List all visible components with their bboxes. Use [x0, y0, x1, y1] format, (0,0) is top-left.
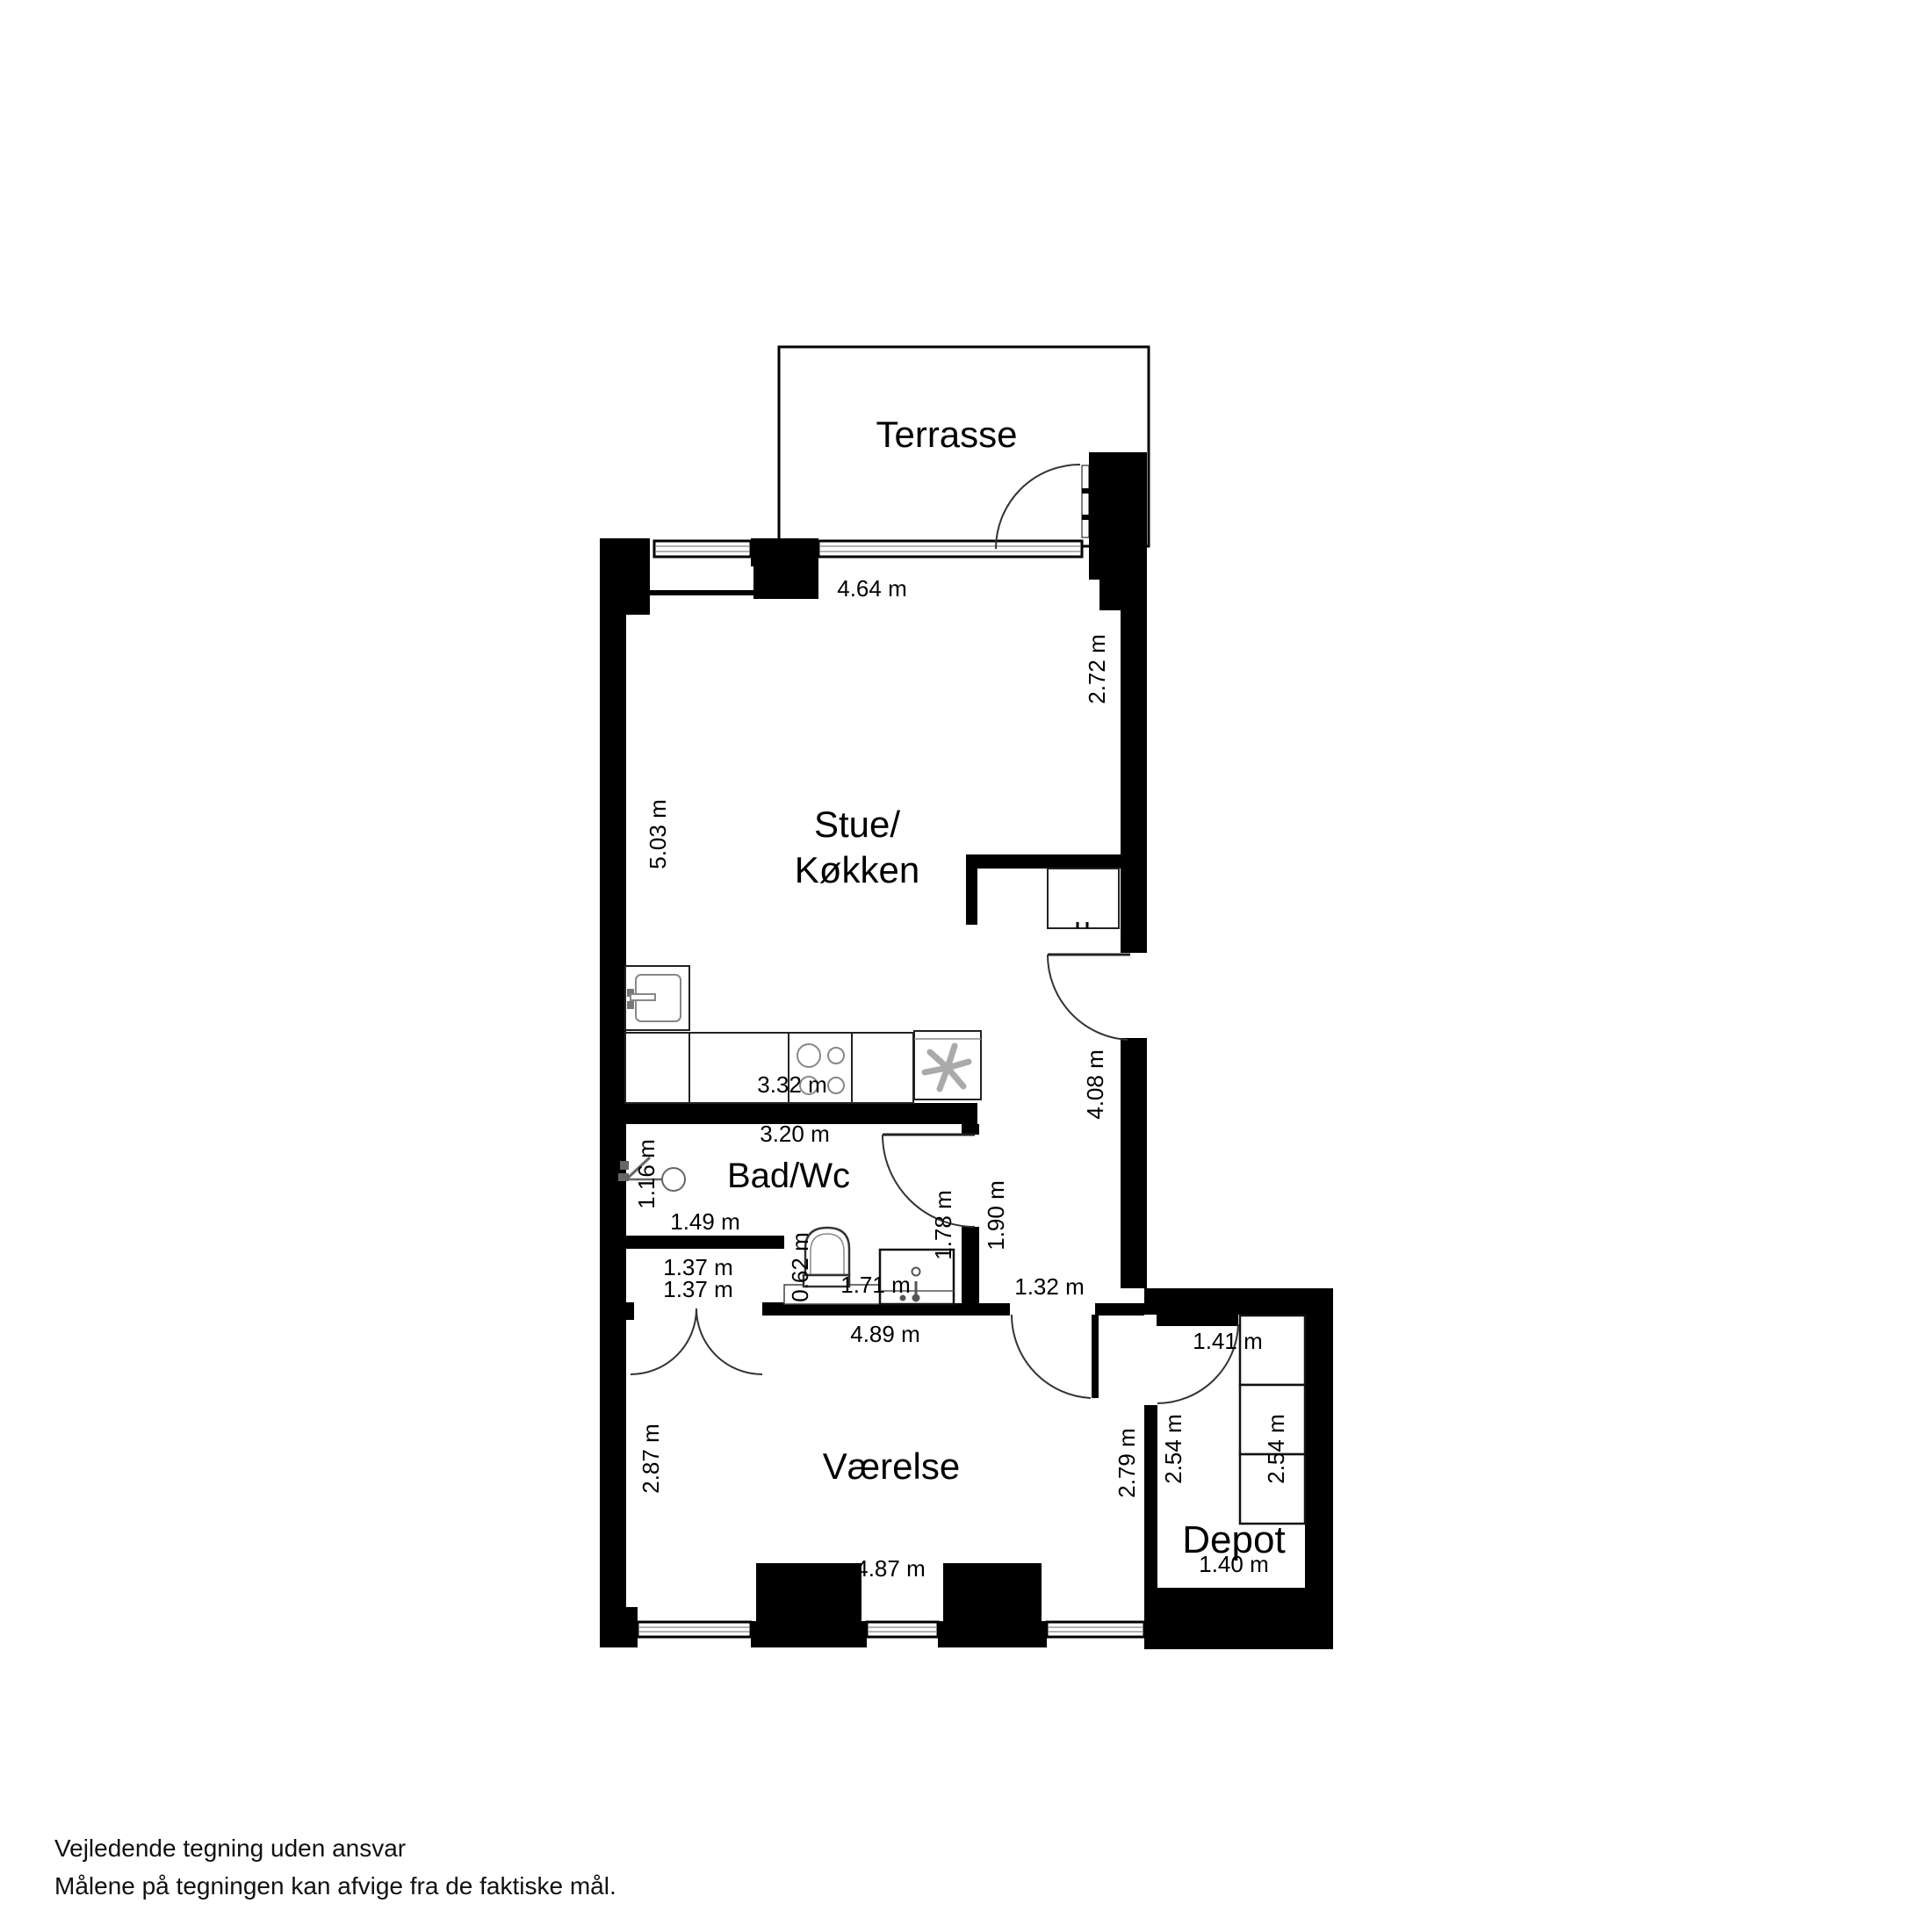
wall-top-pier-lower	[753, 566, 818, 599]
dim-storage-left: 2.54 m	[1160, 1414, 1186, 1484]
wall-left-outer	[600, 538, 626, 1647]
window-bottom-2	[867, 1622, 938, 1637]
bottom-facade	[638, 1622, 1144, 1637]
dim-bedroom-top: 4.89 m	[850, 1321, 920, 1347]
wall-bath-right-stub	[962, 1124, 979, 1135]
disclaimer-line-2: Målene på tegningen kan afvige fra de fa…	[54, 1872, 616, 1900]
dim-top-window: 4.64 m	[837, 575, 907, 602]
shower-head-icon	[662, 1168, 685, 1191]
wall-storage-bottom	[1144, 1588, 1333, 1649]
storage-door-leaf	[1157, 1315, 1238, 1326]
room-label-living-1: Stue/	[814, 804, 900, 845]
nook-cabinet	[1048, 869, 1119, 928]
window-bottom-1	[638, 1622, 751, 1637]
vanity-drain-icon	[912, 1268, 920, 1276]
dim-vanity-width: 1.71 m	[840, 1272, 911, 1298]
window-terrace	[818, 541, 1082, 557]
wall-bath-right-lower	[962, 1227, 979, 1316]
window-bottom-3	[1047, 1622, 1144, 1637]
disclaimer-line-1: Vejledende tegning uden ansvar	[54, 1835, 406, 1862]
faucet-spout-icon	[631, 994, 655, 1000]
kitchen-fixtures	[625, 869, 1119, 1103]
dim-bedroom-right: 2.79 m	[1114, 1428, 1140, 1498]
wall-storage-top	[1144, 1288, 1333, 1315]
dim-storage-door: 1.41 m	[1193, 1328, 1263, 1354]
shower-mount-icon	[620, 1161, 629, 1170]
dim-storage-width: 1.40 m	[1199, 1551, 1269, 1577]
terrace-door-tick	[1082, 488, 1089, 494]
stove-burner-icon	[828, 1078, 844, 1093]
closet-door-swing-right	[696, 1308, 762, 1374]
terrace-door-leaf	[1082, 465, 1089, 537]
dim-bath-width: 3.20 m	[760, 1121, 830, 1147]
bedroom-door-leaf	[1092, 1315, 1099, 1398]
dim-living-right: 2.72 m	[1084, 634, 1110, 704]
dim-hall-width: 1.90 m	[983, 1180, 1009, 1251]
dim-toilet-width: 0.62 m	[787, 1232, 813, 1302]
room-label-bedroom: Værelse	[823, 1445, 960, 1487]
dim-hall-lower: 1.32 m	[1014, 1273, 1085, 1300]
floorplan-drawing: 4.87 m Terrasse Stue/ Køkken Bad/Wc Være…	[0, 0, 1932, 1932]
closet-door-swing-left	[631, 1308, 696, 1374]
dim-closet-lower: 1.37 m	[663, 1276, 733, 1302]
dim-bedroom-left: 2.87 m	[638, 1424, 664, 1494]
window-top-left	[654, 541, 751, 557]
bath-door-swing	[883, 1135, 975, 1227]
dim-hall-height: 4.08 m	[1082, 1049, 1108, 1120]
room-label-terrace: Terrasse	[876, 414, 1017, 455]
wall-bottom-pier-b	[943, 1563, 1042, 1625]
wall-right-mid	[1121, 1038, 1147, 1288]
wall-closet-top	[624, 1236, 784, 1249]
dim-storage-shelf: 2.54 m	[1263, 1414, 1289, 1484]
wall-hall-bottom-right	[1095, 1303, 1144, 1316]
wall-terrace-door-block	[1089, 452, 1147, 580]
wall-bottom-pier-a-base	[751, 1621, 867, 1647]
wall-bottom-left-foot	[600, 1607, 638, 1647]
bedroom-door-swing	[1012, 1315, 1091, 1398]
stove-burner-icon	[828, 1048, 844, 1063]
wall-top-pier-upper	[751, 538, 818, 566]
wall-kitchen-nook-horizontal	[966, 854, 1121, 869]
floorplan-page: 4.87 m Terrasse Stue/ Køkken Bad/Wc Være…	[0, 0, 1932, 1932]
top-facade	[654, 541, 1082, 557]
dim-bath-left: 1.49 m	[670, 1208, 740, 1235]
wall-right-upper	[1121, 610, 1147, 953]
dim-kitchen-counter: 3.32 m	[757, 1071, 827, 1098]
stove-burner-icon	[797, 1044, 820, 1067]
dim-living-left: 5.03 m	[645, 799, 671, 869]
faucet-knob-icon	[627, 1001, 634, 1009]
terrace-door-tick	[1082, 515, 1089, 520]
closet-jamb-left	[624, 1302, 634, 1320]
wall-kitchen-nook-stub	[966, 854, 977, 925]
wall-bottom-pier-a	[756, 1563, 861, 1625]
room-label-living-2: Køkken	[795, 849, 919, 890]
wall-bottom-pier-b-base	[938, 1621, 1047, 1647]
vanity-knob-icon	[912, 1294, 920, 1302]
wall-storage-left	[1144, 1405, 1157, 1588]
room-label-bath: Bad/Wc	[727, 1157, 850, 1195]
dim-shower-side: 1.16 m	[633, 1139, 660, 1209]
wall-top-left-corner	[600, 538, 650, 615]
dim-bedroom-bottom: 4.87 m	[855, 1555, 926, 1582]
entrance-door-swing	[1048, 955, 1128, 1040]
radiator-niche-line	[650, 590, 753, 595]
dim-bath-door: 1.78 m	[930, 1190, 956, 1260]
wall-terrace-door-step	[1099, 580, 1147, 610]
